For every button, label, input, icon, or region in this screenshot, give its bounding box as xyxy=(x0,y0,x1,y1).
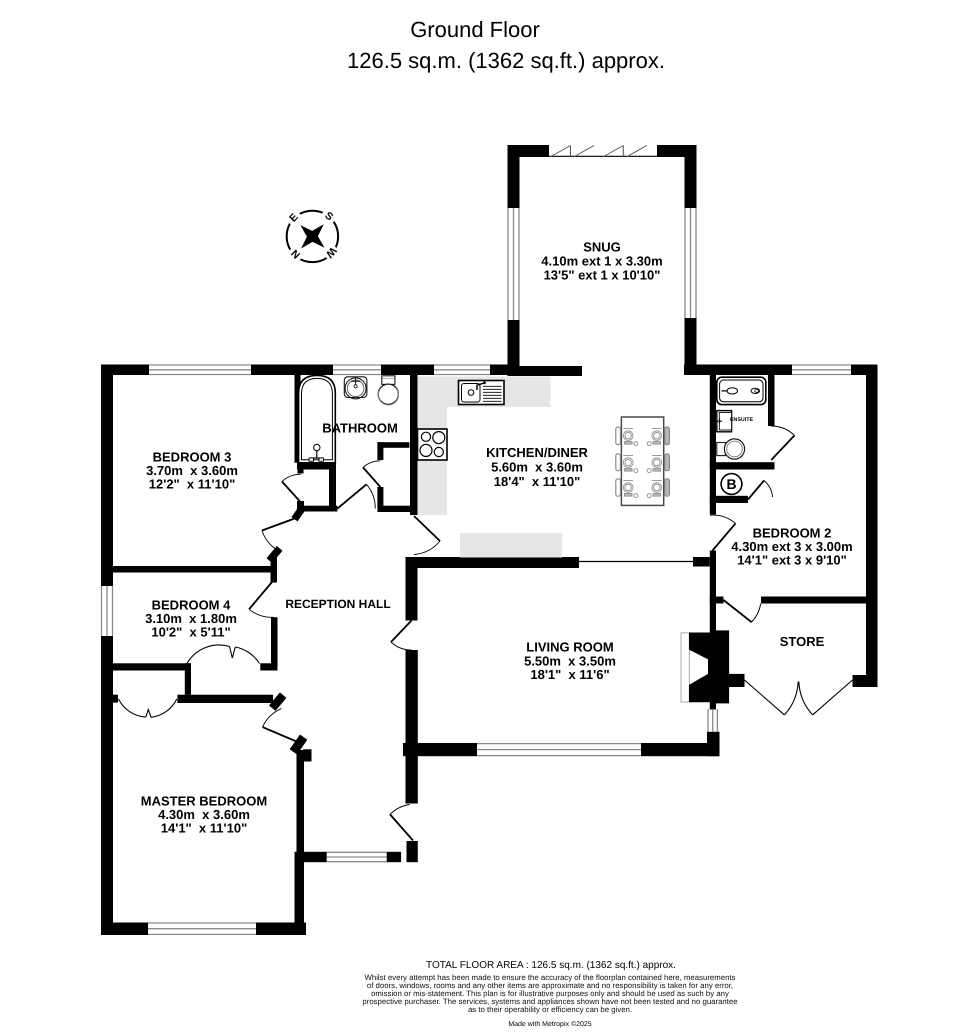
svg-text:TOTAL FLOOR AREA : 126.5 sq.m.: TOTAL FLOOR AREA : 126.5 sq.m. (1362 sq.… xyxy=(426,960,676,971)
svg-text:B: B xyxy=(726,476,736,492)
svg-text:126.5 sq.m. (1362 sq.ft.) appr: 126.5 sq.m. (1362 sq.ft.) approx. xyxy=(347,48,665,73)
svg-text:STORE: STORE xyxy=(780,634,825,649)
svg-text:BATHROOM: BATHROOM xyxy=(322,421,398,436)
svg-text:KITCHEN/DINER: KITCHEN/DINER xyxy=(486,445,588,460)
svg-text:13'5" ext 1 x 10'10": 13'5" ext 1 x 10'10" xyxy=(544,268,661,283)
svg-text:14'1" x 11'10": 14'1" x 11'10" xyxy=(161,821,247,836)
svg-text:Made with Metropix ©2025: Made with Metropix ©2025 xyxy=(508,1020,591,1028)
svg-text:SNUG: SNUG xyxy=(583,240,621,255)
svg-text:LIVING ROOM: LIVING ROOM xyxy=(526,640,613,655)
svg-text:10'2" x 5'11": 10'2" x 5'11" xyxy=(151,625,230,640)
svg-text:ENSUITE: ENSUITE xyxy=(730,417,753,423)
svg-text:18'1" x 11'6": 18'1" x 11'6" xyxy=(530,667,609,682)
svg-text:Ground Floor: Ground Floor xyxy=(410,17,540,42)
svg-text:14'1" ext 3 x 9'10": 14'1" ext 3 x 9'10" xyxy=(737,553,847,568)
svg-text:4.10m ext 1 x 3.30m: 4.10m ext 1 x 3.30m xyxy=(541,254,662,269)
svg-text:RECEPTION HALL: RECEPTION HALL xyxy=(285,597,390,611)
svg-text:5.60m x 3.60m: 5.60m x 3.60m xyxy=(491,460,583,475)
svg-text:18'4" x 11'10": 18'4" x 11'10" xyxy=(494,474,580,489)
svg-text:12'2" x 11'10": 12'2" x 11'10" xyxy=(149,477,235,492)
svg-text:as to their operability or eff: as to their operability or efficiency ca… xyxy=(468,1005,632,1014)
